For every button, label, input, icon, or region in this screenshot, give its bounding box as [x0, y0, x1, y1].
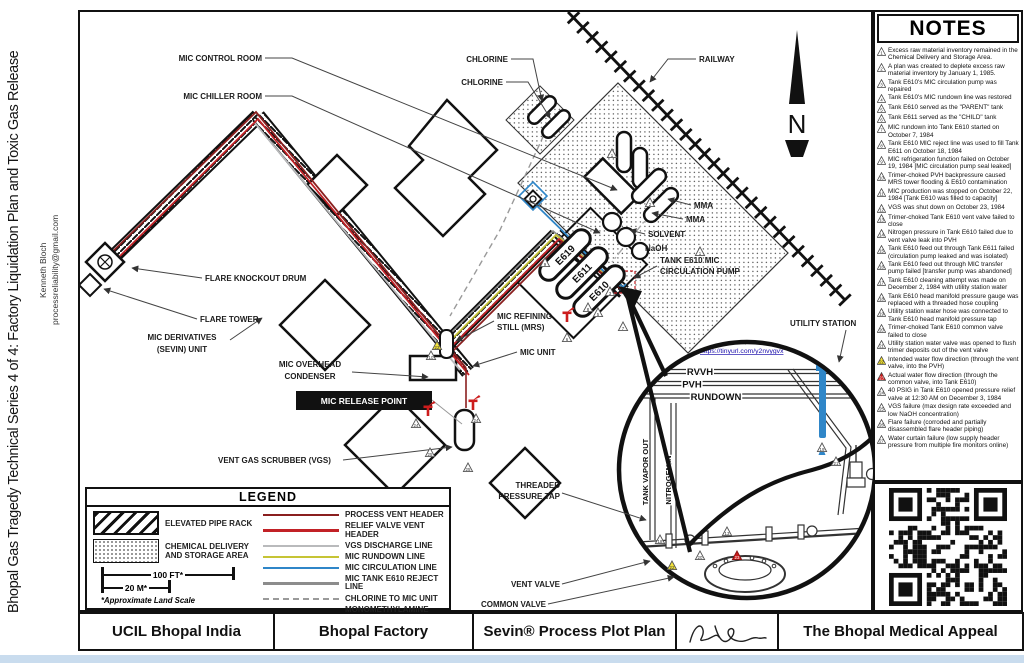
- note-text: MIC production was stopped on October 22…: [888, 188, 1019, 203]
- series-title: Bhopal Gas Tragedy Technical Series 4 of…: [6, 0, 36, 663]
- scale-100ft: 100 FT*: [151, 570, 185, 580]
- note-text: Excess raw material inventory remained i…: [888, 47, 1019, 62]
- note-text: VGS was shut down on October 23, 1984: [888, 204, 1005, 211]
- threaded-pressure-tap-label-1: THREADED: [516, 481, 561, 490]
- note-item: 18Tank E610 head manifold pressure gauge…: [877, 293, 1019, 308]
- qr-code-box: [873, 482, 1023, 612]
- note-item: 15Tank E610 feed out through Tank E611 f…: [877, 245, 1019, 260]
- mic-control-room-label: MIC CONTROL ROOM: [179, 54, 263, 63]
- svg-text:21: 21: [879, 344, 884, 349]
- svg-text:11: 11: [879, 191, 884, 196]
- legend-line-sample: [263, 545, 339, 547]
- mic-derivatives-label-1: MIC DERIVATIVES: [147, 333, 217, 342]
- note-text: Tank E610 served as the "PARENT" tank: [888, 104, 1003, 111]
- flare-tower-label: FLARE TOWER: [200, 315, 259, 324]
- svg-text:26: 26: [879, 423, 884, 428]
- legend-line-label: CHLORINE TO MIC UNIT: [345, 595, 445, 604]
- note-warning-triangle-icon: 17: [877, 277, 886, 286]
- vent-valve-label: VENT VALVE: [511, 580, 561, 589]
- note-text: Trimer-choked PVH backpressure caused MR…: [888, 172, 1019, 187]
- note-text: Utility station water valve was opened t…: [888, 340, 1019, 355]
- svg-text:10: 10: [879, 176, 884, 181]
- mic-refining-still-label-2: STILL (MRS): [497, 323, 545, 332]
- note-item: 21Utility station water valve was opened…: [877, 340, 1019, 355]
- note-text: Trimer-choked Tank E610 common valve fai…: [888, 324, 1019, 339]
- note-warning-triangle-icon: 14: [877, 229, 886, 238]
- note-warning-triangle-icon: 24: [877, 387, 886, 396]
- note-warning-triangle-icon: 27: [877, 435, 886, 444]
- note-item: 6Tank E611 served as the "CHILD" tank: [877, 114, 1019, 123]
- solvent-label: SOLVENT: [648, 230, 685, 239]
- note-text: Tank E610's MIC circulation pump was rep…: [888, 79, 1019, 94]
- legend-line-label: MIC CIRCULATION LINE: [345, 564, 445, 573]
- svg-text:13: 13: [879, 217, 884, 222]
- scale-note: *Approximate Land Scale: [101, 596, 259, 605]
- legend-line-item: MIC CIRCULATION LINE: [263, 564, 445, 573]
- note-warning-triangle-icon: 26: [877, 419, 886, 428]
- note-item: 17Tank E610 cleaning attempt was made on…: [877, 277, 1019, 292]
- note-text: Tank E610 head manifold pressure gauge w…: [888, 293, 1019, 308]
- legend-line-item: MIC TANK E610 REJECT LINE: [263, 575, 445, 592]
- mma-label-2: MMA: [686, 215, 705, 224]
- svg-text:27: 27: [879, 439, 884, 444]
- note-text: MIC refrigeration function failed on Oct…: [888, 156, 1019, 171]
- note-warning-triangle-icon: 6: [877, 114, 886, 123]
- note-warning-triangle-icon: 1: [877, 47, 886, 56]
- note-text: A plan was created to deplete excess raw…: [888, 63, 1019, 78]
- svg-text:19: 19: [879, 312, 884, 317]
- note-warning-triangle-icon: 23: [877, 372, 886, 381]
- svg-text:14: 14: [879, 233, 884, 238]
- legend-title: LEGEND: [87, 489, 449, 507]
- note-text: Nitrogen pressure in Tank E610 failed du…: [888, 229, 1019, 244]
- common-valve-label: COMMON VALVE: [481, 600, 547, 609]
- svg-text:25: 25: [428, 452, 433, 457]
- note-text: Tank E610 feed out through Tank E611 fai…: [888, 245, 1019, 260]
- legend-line-sample: [263, 529, 339, 531]
- mic-derivatives-label-2: (SEVIN) UNIT: [157, 345, 207, 354]
- legend-line-item: PROCESS VENT HEADER: [263, 511, 445, 520]
- note-item: 3Tank E610's MIC circulation pump was re…: [877, 79, 1019, 94]
- note-warning-triangle-icon: 16: [877, 261, 886, 270]
- mic-refining-still: [440, 330, 453, 358]
- scale-20m: 20 M*: [123, 583, 149, 593]
- chlorine-label-2: CHLORINE: [461, 78, 503, 87]
- svg-text:25: 25: [466, 467, 471, 472]
- note-item: 26Flare failure (corroded and partially …: [877, 419, 1019, 434]
- elevated-pipe-rack-swatch: [93, 511, 159, 535]
- note-text: Actual water flow direction (through the…: [888, 372, 1019, 387]
- legend-line-label: PROCESS VENT HEADER: [345, 511, 445, 520]
- titleblock-client: The Bhopal Medical Appeal: [779, 614, 1022, 649]
- scale-bar: 100 FT* 20 M* *Approximate Land Scale: [101, 567, 259, 605]
- flare-knockout-drum-label: FLARE KNOCKOUT DRUM: [205, 274, 307, 283]
- mic-refining-still-label-1: MIC REFINING: [497, 312, 552, 321]
- legend-line-sample: [263, 598, 339, 600]
- legend-line-label: MIC RUNDOWN LINE: [345, 553, 445, 562]
- legend-panel: LEGEND ELEVATED PIPE RACK CHEMICAL DELIV…: [85, 487, 451, 610]
- mic-release-point-label: MIC RELEASE POINT: [321, 396, 408, 406]
- legend-line-sample: [263, 582, 339, 584]
- note-warning-triangle-icon: 10: [877, 172, 886, 181]
- svg-text:12: 12: [879, 207, 884, 212]
- chlorine-label-1: CHLORINE: [466, 55, 508, 64]
- note-warning-triangle-icon: 21: [877, 340, 886, 349]
- note-item: 12VGS was shut down on October 23, 1984: [877, 204, 1019, 213]
- note-text: Flare failure (corroded and partially di…: [888, 419, 1019, 434]
- mic-chiller-room-label: MIC CHILLER ROOM: [183, 92, 262, 101]
- legend-line-label: MIC TANK E610 REJECT LINE: [345, 575, 445, 592]
- title-bar: UCIL Bhopal India Bhopal Factory Sevin® …: [78, 612, 1024, 651]
- svg-text:13: 13: [725, 531, 730, 536]
- page: Bhopal Gas Tragedy Technical Series 4 of…: [0, 0, 1024, 663]
- rvvh-label: RVVH: [687, 367, 713, 378]
- note-text: Tank E611 served as the "CHILD" tank: [888, 114, 996, 121]
- note-warning-triangle-icon: 11: [877, 188, 886, 197]
- note-text: Tank E610 feed out through MIC transfer …: [888, 261, 1019, 276]
- svg-text:18: 18: [658, 539, 663, 544]
- note-warning-triangle-icon: 25: [877, 403, 886, 412]
- inset-credit-link[interactable]: https://tinyurl.com/y2nvygvx: [700, 348, 784, 355]
- note-item: 20Trimer-choked Tank E610 common valve f…: [877, 324, 1019, 339]
- note-item: 9MIC refrigeration function failed on Oc…: [877, 156, 1019, 171]
- author-name: Kenneth Bloch: [38, 140, 50, 400]
- note-item: 2A plan was created to deplete excess ra…: [877, 63, 1019, 78]
- note-item: 1Excess raw material inventory remained …: [877, 47, 1019, 62]
- legend-lines: PROCESS VENT HEADERRELIEF VALVE VENT HEA…: [259, 511, 445, 625]
- tank-e610-pump-label-2: CIRCULATION PUMP: [660, 267, 741, 276]
- note-text: Water curtain failure (low supply header…: [888, 435, 1019, 450]
- elevated-pipe-rack-label: ELEVATED PIPE RACK: [165, 519, 252, 528]
- note-item: 5Tank E610 served as the "PARENT" tank: [877, 104, 1019, 113]
- note-item: 16Tank E610 feed out through MIC transfe…: [877, 261, 1019, 276]
- titleblock-site: Bhopal Factory: [275, 614, 474, 649]
- note-warning-triangle-icon: 9: [877, 156, 886, 165]
- note-warning-triangle-icon: 13: [877, 214, 886, 223]
- note-warning-triangle-icon: 12: [877, 204, 886, 213]
- notes-panel: NOTES 1Excess raw material inventory rem…: [873, 10, 1023, 482]
- mic-overhead-condenser-label-1: MIC OVERHEAD: [279, 360, 341, 369]
- legend-line-label: RELIEF VALVE VENT HEADER: [345, 522, 445, 539]
- chemical-storage-swatch: [93, 539, 159, 563]
- note-warning-triangle-icon: 5: [877, 104, 886, 113]
- titleblock-drawing: Sevin® Process Plot Plan: [474, 614, 677, 649]
- note-item: 8Tank E610 MIC reject line was used to f…: [877, 140, 1019, 155]
- note-item: 22Intended water flow direction (through…: [877, 356, 1019, 371]
- vgs-label: VENT GAS SCRUBBER (VGS): [218, 456, 331, 465]
- note-text: Tank E610 MIC reject line was used to fi…: [888, 140, 1019, 155]
- svg-text:18: 18: [879, 296, 884, 301]
- tank-e610-pump-label-1: TANK E610 MIC: [660, 256, 720, 265]
- note-item: 7MIC rundown into Tank E610 started on O…: [877, 124, 1019, 139]
- legend-line-item: CHLORINE TO MIC UNIT: [263, 595, 445, 604]
- note-text: MIC rundown into Tank E610 started on Oc…: [888, 124, 1019, 139]
- signature-cell: [677, 614, 779, 649]
- svg-text:24: 24: [474, 418, 479, 423]
- svg-text:22: 22: [879, 360, 884, 365]
- svg-text:10: 10: [429, 355, 434, 360]
- window-bottom-strip: [0, 655, 1024, 663]
- note-warning-triangle-icon: 18: [877, 293, 886, 302]
- signature: [684, 616, 770, 648]
- svg-text:17: 17: [879, 280, 884, 285]
- chemical-storage-label: CHEMICAL DELIVERY AND STORAGE AREA: [165, 542, 251, 560]
- mma-label-1: MMA: [694, 201, 713, 210]
- note-item: 11MIC production was stopped on October …: [877, 188, 1019, 203]
- notes-title: NOTES: [877, 14, 1019, 43]
- note-warning-triangle-icon: 3: [877, 79, 886, 88]
- qr-code: [889, 488, 1007, 606]
- pvh-label: PVH: [682, 380, 702, 391]
- railway-label: RAILWAY: [699, 55, 735, 64]
- note-text: Intended water flow direction (through t…: [888, 356, 1019, 371]
- note-text: 40 PSIG in Tank E610 opened pressure rel…: [888, 387, 1019, 402]
- note-warning-triangle-icon: 7: [877, 124, 886, 133]
- note-warning-triangle-icon: 20: [877, 324, 886, 333]
- svg-text:20: 20: [879, 328, 884, 333]
- svg-text:23: 23: [735, 555, 740, 560]
- titleblock-company: UCIL Bhopal India: [80, 614, 275, 649]
- svg-text:25: 25: [879, 407, 884, 412]
- note-text: Trimer-choked Tank E610 vent valve faile…: [888, 214, 1019, 229]
- mic-release-point: MIC RELEASE POINT: [296, 391, 432, 410]
- note-warning-triangle-icon: 22: [877, 356, 886, 365]
- svg-text:24: 24: [879, 391, 884, 396]
- note-item: 4Tank E610's MIC rundown line was restor…: [877, 94, 1019, 103]
- svg-text:22: 22: [435, 345, 440, 350]
- mic-overhead-condenser-label-2: CONDENSER: [284, 372, 335, 381]
- svg-text:21: 21: [834, 461, 839, 466]
- legend-line-item: VGS DISCHARGE LINE: [263, 542, 445, 551]
- svg-text:20: 20: [698, 555, 703, 560]
- note-item: 23Actual water flow direction (through t…: [877, 372, 1019, 387]
- note-item: 2440 PSIG in Tank E610 opened pressure r…: [877, 387, 1019, 402]
- legend-line-sample: [263, 514, 339, 516]
- note-text: VGS failure (max design rate exceeded an…: [888, 403, 1019, 418]
- author-email: processreliability@gmail.com: [50, 120, 62, 420]
- note-item: 10Trimer-choked PVH backpressure caused …: [877, 172, 1019, 187]
- tank-vapor-out-label: TANK VAPOR OUT: [641, 438, 650, 505]
- note-item: 14Nitrogen pressure in Tank E610 failed …: [877, 229, 1019, 244]
- svg-text:15: 15: [879, 249, 884, 254]
- note-warning-triangle-icon: 8: [877, 140, 886, 149]
- legend-line-sample: [263, 567, 339, 569]
- note-warning-triangle-icon: 15: [877, 245, 886, 254]
- svg-text:16: 16: [879, 265, 884, 270]
- note-item: 19Utility station water hose was connect…: [877, 308, 1019, 323]
- rundown-label: RUNDOWN: [691, 392, 742, 403]
- naoh-label: NaOH: [645, 244, 667, 253]
- note-warning-triangle-icon: 2: [877, 63, 886, 72]
- note-item: 25VGS failure (max design rate exceeded …: [877, 403, 1019, 418]
- threaded-pressure-tap-label-2: PRESSURE TAP: [498, 492, 560, 501]
- svg-text:19: 19: [820, 447, 825, 452]
- legend-line-item: MIC RUNDOWN LINE: [263, 553, 445, 562]
- note-text: Tank E610 cleaning attempt was made on D…: [888, 277, 1019, 292]
- note-text: Utility station water hose was connected…: [888, 308, 1019, 323]
- vent-gas-scrubber: [455, 410, 474, 450]
- legend-line-item: RELIEF VALVE VENT HEADER: [263, 522, 445, 539]
- note-warning-triangle-icon: 4: [877, 94, 886, 103]
- legend-line-sample: [263, 556, 339, 558]
- note-text: Tank E610's MIC rundown line was restore…: [888, 94, 1012, 101]
- legend-line-label: VGS DISCHARGE LINE: [345, 542, 445, 551]
- mic-unit-label: MIC UNIT: [520, 348, 556, 357]
- svg-text:22: 22: [670, 565, 675, 570]
- note-item: 13Trimer-choked Tank E610 vent valve fai…: [877, 214, 1019, 229]
- svg-text:23: 23: [879, 375, 884, 380]
- utility-station-label: UTILITY STATION: [790, 319, 856, 328]
- note-item: 27Water curtain failure (low supply head…: [877, 435, 1019, 450]
- compass-n: N: [788, 109, 807, 139]
- note-warning-triangle-icon: 19: [877, 308, 886, 317]
- svg-text:24: 24: [414, 423, 419, 428]
